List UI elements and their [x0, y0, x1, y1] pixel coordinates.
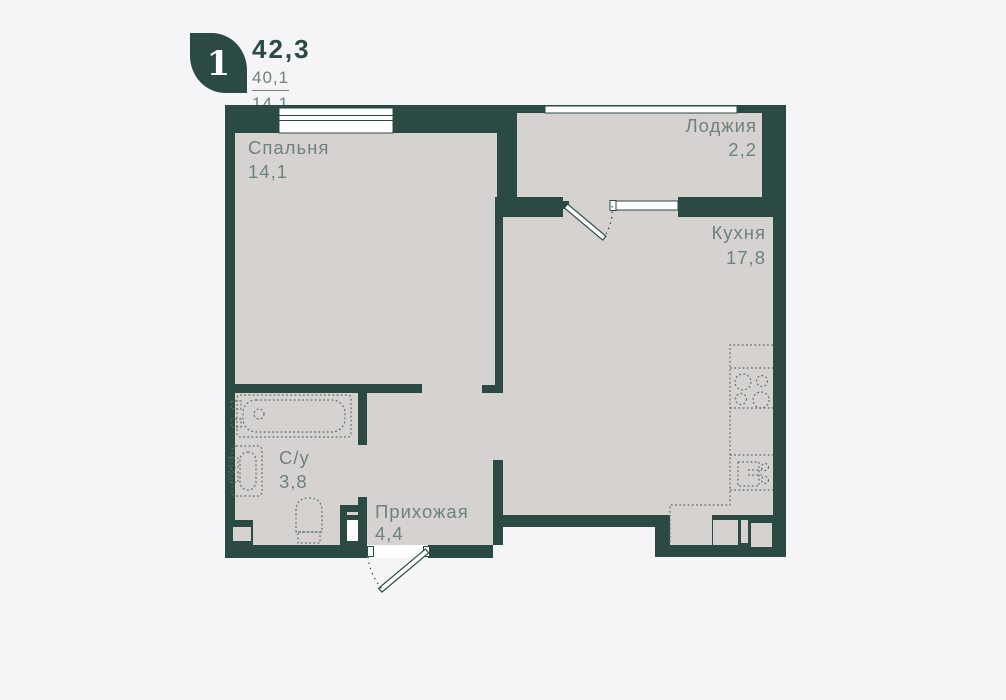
- wall-segment: [495, 217, 503, 393]
- wall-segment: [497, 113, 517, 197]
- shaft: [751, 523, 772, 547]
- wall-segment: [225, 545, 367, 558]
- duct-inner: [233, 527, 251, 541]
- window-sill-cap: [610, 201, 616, 211]
- entrance-door: [367, 545, 430, 592]
- kitchen-floor-bump: [670, 515, 712, 545]
- shaft: [713, 520, 738, 545]
- wall-segment: [358, 393, 367, 445]
- frame-slit: [347, 512, 358, 515]
- entrance-door-swing-arc: [368, 557, 382, 589]
- room-label-kitchen: Кухня: [711, 222, 766, 243]
- entrance-jamb: [368, 547, 374, 557]
- wall-segment: [225, 384, 422, 393]
- room-area-kitchen: 17,8: [726, 247, 766, 268]
- wall-segment: [495, 197, 563, 217]
- room-area-bedroom: 14,1: [248, 161, 288, 182]
- kitchen-loggia-window: [612, 201, 678, 210]
- shaft: [741, 520, 748, 543]
- wall-segment: [358, 497, 367, 545]
- room-label-hallway: Прихожая: [375, 501, 469, 522]
- room-label-loggia: Лоджия: [685, 115, 757, 136]
- room-area-hallway: 4,4: [375, 523, 404, 544]
- wall-segment: [678, 197, 786, 217]
- floor-bedroom-hall-bath: [235, 133, 503, 545]
- wall-segment: [428, 545, 493, 558]
- loggia-window: [545, 106, 737, 113]
- room-area-bathroom: 3,8: [279, 471, 308, 492]
- wall-segment: [225, 105, 235, 558]
- wall-segment: [493, 460, 503, 545]
- wall-segment: [493, 515, 670, 527]
- room-label-bedroom: Спальня: [248, 137, 329, 158]
- wall-segment: [773, 217, 786, 557]
- floor-plan: Спальня 14,1 Лоджия 2,2 Кухня 17,8 С/у 3…: [0, 0, 1006, 700]
- room-label-bathroom: С/у: [279, 447, 310, 468]
- frame-inner: [347, 520, 358, 541]
- room-area-loggia: 2,2: [728, 139, 757, 160]
- wall-segment: [482, 385, 495, 393]
